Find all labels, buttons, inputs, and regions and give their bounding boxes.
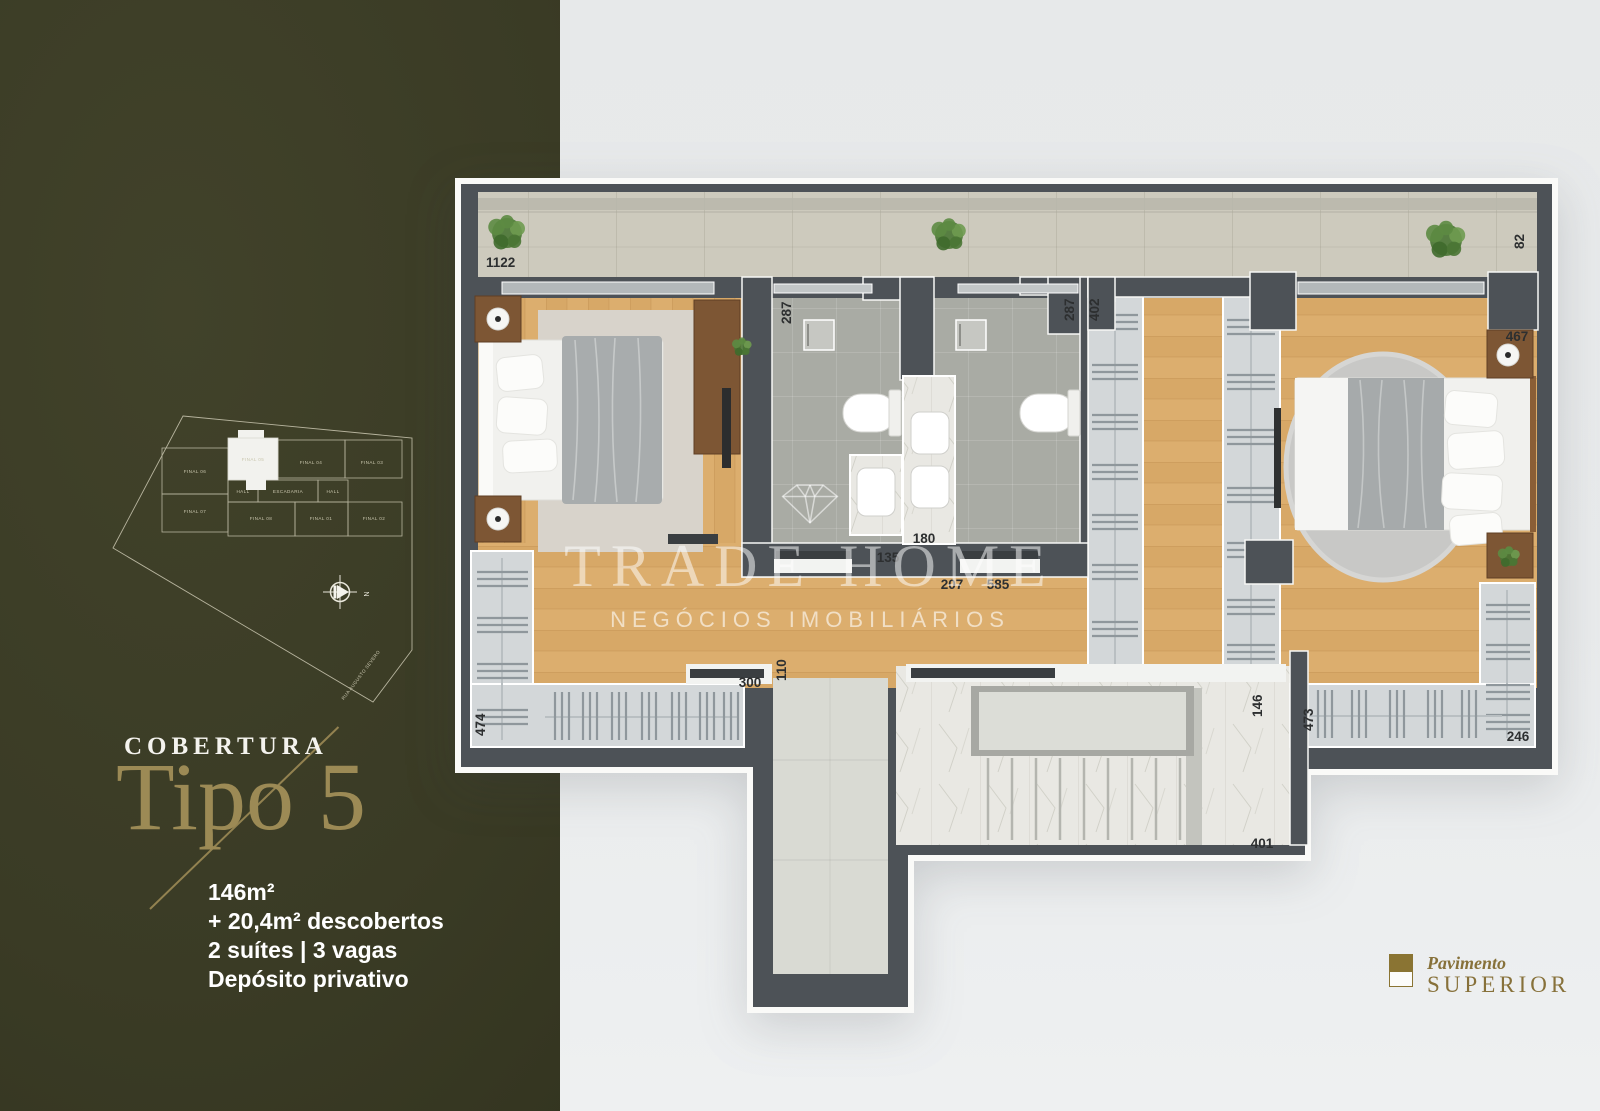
- page-title: Tipo 5: [116, 742, 366, 852]
- terrace: [478, 192, 1537, 277]
- measurement-label: 82: [1512, 234, 1527, 249]
- measurement-label: 401: [1251, 836, 1274, 851]
- measurement-label: 287: [779, 301, 794, 324]
- page: FINAL 06 FINAL 05 FINAL 04 FINAL 03 HALL…: [0, 0, 1600, 1111]
- floor-level-icon: [1389, 954, 1415, 990]
- bench: [668, 534, 718, 544]
- floor-indicator: Pavimento SUPERIOR: [1389, 954, 1570, 997]
- measurement-label: 300: [739, 675, 762, 690]
- measurement-label: 146: [1250, 694, 1265, 717]
- detail-area: 146m²: [208, 878, 444, 907]
- measurement-label: 402: [1087, 298, 1102, 321]
- floor-indicator-small: Pavimento: [1427, 954, 1570, 973]
- measurement-label: 110: [774, 659, 789, 681]
- toilet1: [843, 394, 895, 432]
- double-vanity: [903, 376, 955, 544]
- measurement-label: 1122: [486, 255, 515, 270]
- stair-railing: [911, 668, 1055, 678]
- door-leaf: [962, 551, 1038, 559]
- closet-corridor-floor: [1143, 298, 1223, 673]
- terrace-doors: [502, 282, 1484, 294]
- measurement-label: 474: [473, 713, 488, 736]
- bed2: [1295, 376, 1536, 546]
- sink: [857, 468, 895, 516]
- dresser: [694, 300, 740, 454]
- detail-uncovered-area: + 20,4m² descobertos: [208, 907, 444, 936]
- measurement-label: 467: [1506, 329, 1529, 344]
- bedroom1-furniture: [475, 296, 740, 552]
- door-sill: [774, 559, 852, 573]
- measurement-label: 585: [987, 577, 1010, 592]
- detail-storage: Depósito privativo: [208, 965, 444, 994]
- tv: [722, 388, 731, 468]
- stair-void: [979, 692, 1186, 750]
- unit-details: 146m² + 20,4m² descobertos 2 suítes | 3 …: [208, 878, 444, 994]
- measurement-label: 207: [941, 577, 964, 592]
- measurement-label: 135: [877, 550, 900, 565]
- measurement-label: 473: [1301, 708, 1316, 731]
- bed1: [479, 336, 663, 504]
- tv: [1274, 408, 1281, 508]
- deposit-room: [773, 678, 888, 974]
- measurement-label: 246: [1507, 729, 1530, 744]
- door-leaf: [776, 551, 850, 559]
- floor-plan: 1122822872874024671351802075853001104744…: [455, 178, 1558, 1013]
- closet-bl-horizontal: [471, 684, 744, 747]
- sink: [911, 466, 949, 508]
- stairwell: [896, 666, 1290, 845]
- toilet2: [1020, 394, 1074, 432]
- detail-suites-parking: 2 suítes | 3 vagas: [208, 936, 444, 965]
- measurement-label: 180: [913, 531, 936, 546]
- door-sill: [960, 559, 1040, 573]
- floor-indicator-big: SUPERIOR: [1427, 973, 1570, 997]
- sink: [911, 412, 949, 454]
- measurement-label: 287: [1062, 298, 1077, 321]
